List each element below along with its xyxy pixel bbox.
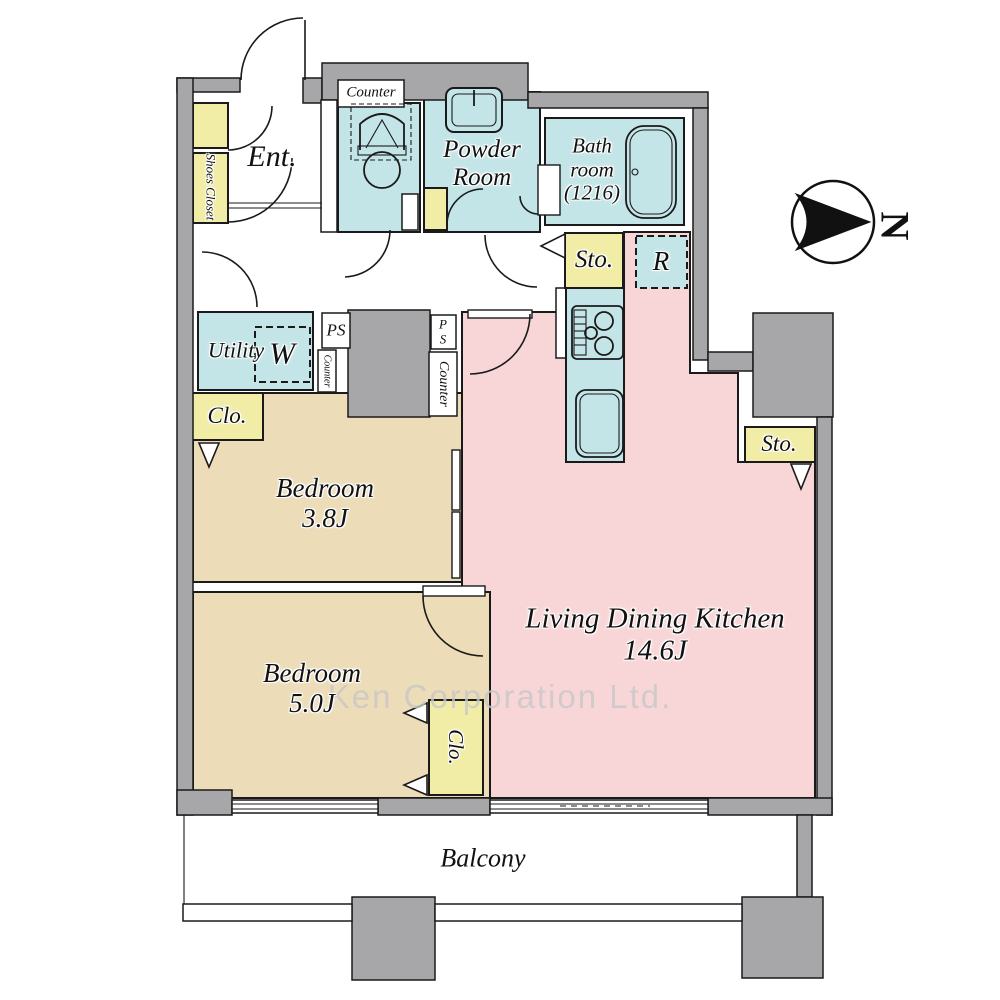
toilet-door-arc: [345, 230, 390, 277]
powder-room-label: Powder Room: [427, 136, 537, 192]
window-bedroom-b: [232, 800, 378, 813]
kitchen-counter-area: [566, 288, 624, 462]
entrance-toilet-partition: [321, 100, 337, 232]
wall-bottom-mid: [378, 798, 490, 815]
corridor-door-arc: [202, 252, 257, 307]
bedroom-b-size: 5.0J: [263, 688, 361, 718]
bedroom-a-size: 3.8J: [276, 503, 374, 533]
wall-right-lower: [817, 417, 832, 815]
balcony-pillar-left: [352, 897, 435, 980]
powder-cabinet: [424, 188, 447, 230]
kitchen-counter-side: [556, 288, 566, 358]
sliding-panel-upper: [452, 450, 460, 510]
pipe-space-b-label: PS: [437, 317, 450, 346]
shoes-closet-upper: [193, 103, 228, 148]
ldk-name: Living Dining Kitchen: [525, 603, 784, 635]
bedroom-a-label: Bedroom 3.8J: [276, 473, 374, 533]
balcony-wall-right: [797, 815, 812, 897]
storage-a-door-marker: [541, 234, 565, 258]
entry-door-arc: [241, 18, 303, 80]
wall-bottom-left-corner: [177, 790, 232, 815]
wall-right-upper: [693, 108, 708, 360]
bathroom-label: Bath room (1216): [556, 135, 628, 206]
compass: [792, 181, 874, 263]
wall-bottom-right: [708, 798, 832, 815]
entrance-label: Ent.: [247, 140, 296, 174]
storage-a-label: Sto.: [575, 246, 613, 274]
refrigerator-label: R: [653, 246, 670, 276]
counter-b-label: Counter: [435, 361, 451, 407]
bedroom-b-name: Bedroom: [263, 658, 361, 688]
washroom-hall-door-arc: [485, 235, 537, 287]
bedroom-b-label: Bedroom 5.0J: [263, 658, 361, 718]
bathroom-name: Bath room: [556, 135, 628, 182]
north-label: N: [872, 212, 917, 241]
ldk-door-leaf: [468, 310, 532, 318]
balcony-label: Balcony: [440, 843, 525, 872]
watermark: Ken Corporation Ltd.: [328, 678, 673, 716]
floor-plan: Ken Corporation Ltd. Ent. Shoes Closet C…: [0, 0, 1000, 1000]
pipe-space-a-label: PS: [327, 320, 346, 339]
storage-b-label: Sto.: [761, 431, 796, 457]
wall-entry-stub: [303, 78, 322, 103]
shoes-closet-label: Shoes Closet: [203, 154, 218, 221]
bedroom-b-door-leaf: [423, 586, 485, 596]
toilet-counter-label: Counter: [346, 85, 395, 102]
wall-top-bath: [528, 92, 708, 108]
bedroom-a-name: Bedroom: [276, 473, 374, 503]
column-center: [348, 310, 430, 417]
toilet-cabinet: [402, 194, 418, 230]
ldk-label: Living Dining Kitchen 14.6J: [525, 603, 784, 668]
sliding-panel-lower: [452, 512, 460, 578]
balcony-rail-right: [435, 904, 742, 921]
bathroom-size: (1216): [556, 182, 628, 206]
column-right: [753, 313, 833, 417]
balcony-rail-left: [183, 904, 352, 921]
wall-right-jog: [708, 352, 753, 371]
counter-a-label: Counter: [321, 355, 332, 388]
wall-left: [177, 78, 193, 815]
utility-label: Utility: [208, 339, 264, 364]
ldk-size: 14.6J: [525, 635, 784, 667]
closet-a-label: Clo.: [208, 403, 247, 429]
washer-label: W: [269, 337, 295, 372]
closet-b-label: Clo.: [443, 729, 467, 765]
balcony-pillar-right: [742, 897, 823, 978]
